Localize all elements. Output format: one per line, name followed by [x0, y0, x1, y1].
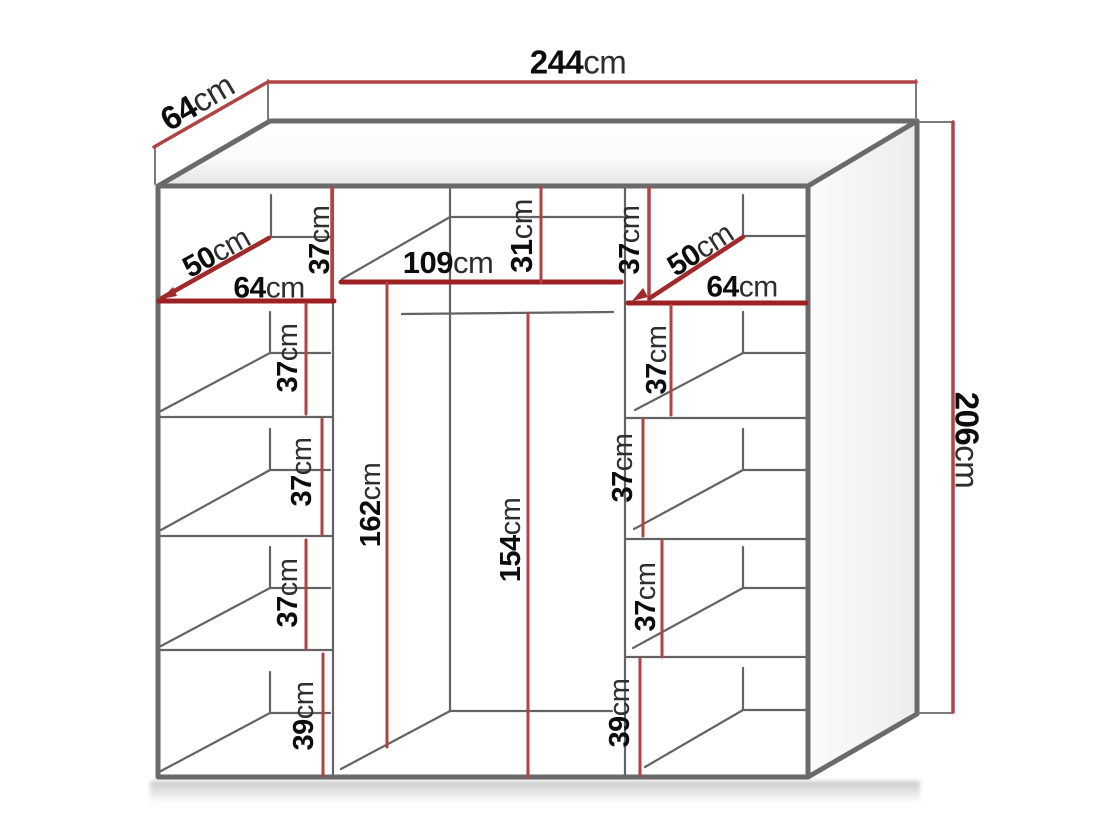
- label-right-section-2: 37cm: [607, 434, 639, 503]
- label-overall-height: 206cm: [948, 392, 985, 489]
- dim-value: 37: [614, 243, 646, 274]
- dim-value: 37: [286, 475, 318, 506]
- dim-unit: cm: [266, 272, 305, 305]
- dim-unit: cm: [286, 438, 318, 476]
- label-overall-width: 244cm: [530, 44, 627, 81]
- dim-value: 37: [272, 596, 304, 627]
- dim-value: 37: [641, 363, 673, 394]
- dim-unit: cm: [641, 326, 673, 364]
- dim-unit: cm: [614, 206, 646, 244]
- dim-value: 37: [272, 361, 304, 392]
- dim-value: 31: [504, 239, 539, 273]
- label-left-section-4: 39cm: [288, 682, 320, 751]
- wardrobe-dimension-diagram: 244cm 64cm 206cm 109cm 31cm 162cm 154cm …: [0, 0, 1100, 825]
- dim-value: 37: [607, 471, 639, 502]
- label-left-shelf-width: 64cm: [233, 272, 304, 305]
- dim-unit: cm: [272, 324, 304, 362]
- dim-value: 37: [630, 600, 662, 631]
- label-left-section-0: 37cm: [304, 206, 336, 275]
- dim-unit: cm: [604, 679, 636, 717]
- dim-unit: cm: [453, 245, 493, 280]
- dim-value: 162: [355, 500, 387, 547]
- dim-value: 64: [233, 272, 266, 305]
- label-left-section-1: 37cm: [272, 324, 304, 393]
- label-right-section-4: 39cm: [604, 679, 636, 748]
- dim-unit: cm: [288, 682, 320, 720]
- dim-value: 37: [304, 243, 336, 274]
- label-middle-front-height: 154cm: [495, 498, 527, 583]
- dim-unit: cm: [583, 44, 626, 81]
- label-left-section-2: 37cm: [286, 438, 318, 507]
- label-overall-depth: 64cm: [154, 66, 241, 138]
- dim-value: 154: [495, 535, 527, 582]
- label-right-section-0: 37cm: [614, 206, 646, 275]
- dim-value: 64: [706, 271, 739, 304]
- dim-unit: cm: [607, 434, 639, 472]
- dim-value: 206: [948, 392, 985, 446]
- dim-unit: cm: [739, 271, 778, 304]
- dim-unit: cm: [495, 498, 527, 536]
- label-right-section-1: 37cm: [641, 326, 673, 395]
- dim-value: 109: [403, 245, 453, 280]
- dim-value: 39: [288, 719, 320, 751]
- dim-unit: cm: [304, 206, 336, 244]
- label-middle-shelf-width: 109cm: [403, 245, 494, 280]
- label-middle-rear-height: 162cm: [355, 463, 387, 548]
- dim-value: 39: [604, 716, 636, 748]
- label-right-shelf-width: 64cm: [706, 271, 777, 304]
- dim-unit: cm: [355, 463, 387, 501]
- label-right-section-3: 37cm: [630, 563, 662, 632]
- dim-value: 244: [530, 44, 585, 81]
- dim-unit: cm: [504, 199, 539, 239]
- floor-shadow: [150, 781, 920, 803]
- top-face: [158, 121, 917, 186]
- right-side-face: [808, 121, 917, 777]
- label-middle-top-height: 31cm: [504, 199, 539, 273]
- dim-unit: cm: [272, 559, 304, 597]
- dim-unit: cm: [948, 445, 985, 488]
- dim-unit: cm: [630, 563, 662, 601]
- label-left-section-3: 37cm: [272, 559, 304, 628]
- diagram-canvas: 244cm 64cm 206cm 109cm 31cm 162cm 154cm …: [0, 0, 1100, 825]
